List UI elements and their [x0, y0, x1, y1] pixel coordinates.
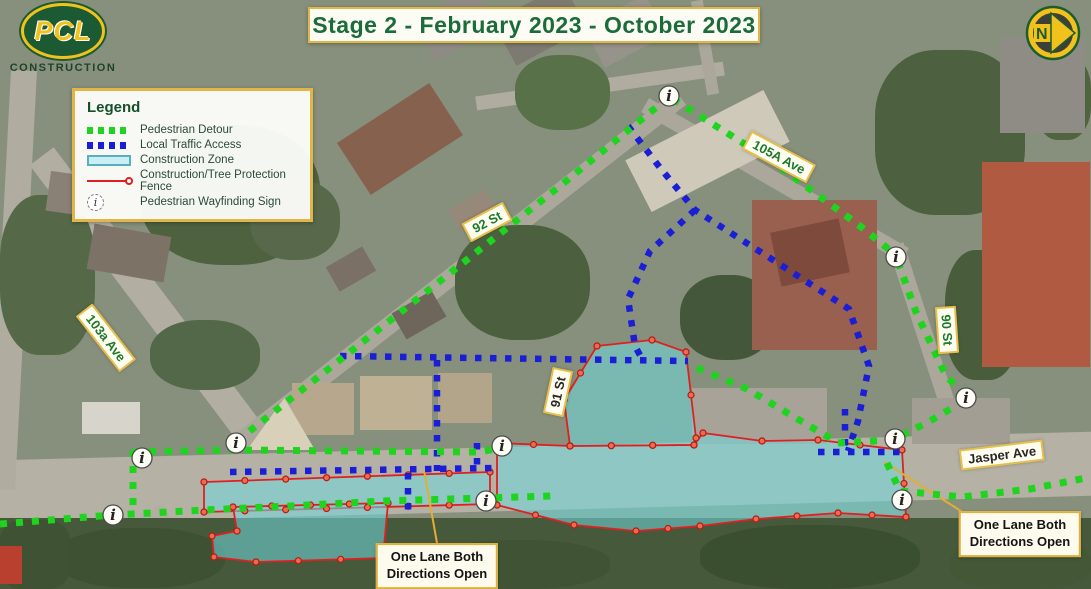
- fence-dot: [753, 516, 759, 522]
- wayfinding-sign-i-glyph: i: [899, 491, 905, 509]
- construction-staging-map: iiiiiiiiii PCL CONSTRUCTION Stage 2 - Fe…: [0, 0, 1091, 589]
- legend-item-construction-fence: Construction/Tree Protection Fence: [87, 169, 300, 193]
- pedestrian-detour-swatch-icon: [87, 124, 131, 136]
- fence-dot: [567, 443, 573, 449]
- fence-dot: [649, 337, 655, 343]
- fence-dot: [295, 558, 301, 564]
- street-label-90-st: 90 St: [935, 306, 959, 354]
- wayfinding-sign-i-glyph: i: [139, 449, 145, 467]
- local-traffic-access-path: [230, 468, 497, 472]
- fence-dot: [242, 478, 248, 484]
- fence-dot: [364, 473, 370, 479]
- fence-dot: [683, 349, 689, 355]
- pcl-logo-oval: PCL: [21, 3, 105, 59]
- fence-dot: [901, 481, 907, 487]
- fence-dot: [230, 504, 236, 510]
- wayfinding-sign-i-glyph: i: [233, 434, 239, 452]
- fence-dot: [700, 430, 706, 436]
- fence-dot: [688, 392, 694, 398]
- construction-zone-area: [564, 340, 696, 446]
- lane-status-callout: One Lane BothDirections Open: [959, 511, 1081, 557]
- north-compass-icon: N: [1024, 4, 1082, 62]
- stage-title-text: Stage 2 - February 2023 - October 2023: [312, 12, 755, 39]
- fence-dot: [608, 443, 614, 449]
- pedestrian-detour-path: [133, 448, 499, 452]
- fence-dot: [211, 554, 217, 560]
- pedestrian-detour-path: [697, 368, 835, 441]
- fence-dot: [759, 438, 765, 444]
- fence-dot: [697, 523, 703, 529]
- fence-dot: [234, 528, 240, 534]
- fence-dot: [446, 502, 452, 508]
- wayfinding-sign-swatch-icon: i: [87, 196, 131, 208]
- fence-dot: [201, 509, 207, 515]
- fence-dot: [571, 522, 577, 528]
- callout-line: Directions Open: [970, 534, 1070, 551]
- fence-dot: [253, 559, 259, 565]
- pedestrian-detour-path: [673, 99, 892, 252]
- legend-title: Legend: [87, 99, 300, 116]
- fence-dot: [869, 512, 875, 518]
- fence-dot: [578, 370, 584, 376]
- local-traffic-access-path: [628, 210, 695, 357]
- legend-label: Local Traffic Access: [140, 139, 241, 151]
- wayfinding-sign-i-glyph: i: [666, 87, 672, 105]
- wayfinding-sign-i-glyph: i: [499, 437, 505, 455]
- fence-dot: [815, 437, 821, 443]
- callout-line: One Lane Both: [387, 549, 487, 566]
- pedestrian-detour-path: [887, 463, 1091, 497]
- fence-dot: [693, 435, 699, 441]
- fence-dot: [533, 512, 539, 518]
- lane-status-callout: One Lane BothDirections Open: [376, 543, 498, 589]
- wayfinding-sign-i-glyph: i: [893, 248, 899, 266]
- fence-dot: [594, 343, 600, 349]
- pcl-logo-subtitle: CONSTRUCTION: [8, 62, 118, 74]
- local-traffic-swatch-icon: [87, 139, 131, 151]
- wayfinding-sign-i-glyph: i: [483, 492, 489, 510]
- callout-line: One Lane Both: [970, 517, 1070, 534]
- fence-dot: [650, 442, 656, 448]
- legend-panel: Legend Pedestrian Detour Local Traffic A…: [72, 88, 313, 222]
- fence-dot: [531, 442, 537, 448]
- legend-item-wayfinding-sign: i Pedestrian Wayfinding Sign: [87, 196, 300, 208]
- fence-dot: [794, 513, 800, 519]
- fence-dot: [364, 504, 370, 510]
- pcl-logo-text: PCL: [35, 16, 92, 47]
- wayfinding-sign-i-glyph: i: [110, 506, 116, 524]
- legend-label: Construction Zone: [140, 154, 234, 166]
- construction-zone-area: [497, 433, 906, 531]
- legend-item-construction-zone: Construction Zone: [87, 154, 300, 166]
- fence-dot: [665, 526, 671, 532]
- stage-title-banner: Stage 2 - February 2023 - October 2023: [308, 7, 760, 43]
- pcl-logo: PCL CONSTRUCTION: [8, 3, 118, 74]
- fence-dot: [338, 556, 344, 562]
- fence-dot: [691, 442, 697, 448]
- fence-dot: [446, 470, 452, 476]
- fence-dot: [633, 528, 639, 534]
- fence-dot: [209, 533, 215, 539]
- wayfinding-sign-i-glyph: i: [963, 389, 969, 407]
- construction-zone-swatch-icon: [87, 154, 131, 166]
- legend-item-local-traffic-access: Local Traffic Access: [87, 139, 300, 151]
- fence-dot: [201, 479, 207, 485]
- compass-n-label: N: [1036, 26, 1048, 43]
- fence-dot: [835, 510, 841, 516]
- fence-dot: [283, 476, 289, 482]
- pedestrian-detour-path: [899, 401, 964, 437]
- legend-item-pedestrian-detour: Pedestrian Detour: [87, 124, 300, 136]
- legend-label: Pedestrian Wayfinding Sign: [140, 196, 281, 208]
- fence-dot: [903, 514, 909, 520]
- north-compass: N: [1024, 4, 1082, 67]
- fence-dot: [324, 475, 330, 481]
- fence-swatch-icon: [87, 175, 131, 187]
- legend-label: Pedestrian Detour: [140, 124, 233, 136]
- wayfinding-sign-i-glyph: i: [892, 430, 898, 448]
- callout-line: Directions Open: [387, 566, 487, 583]
- legend-label: Construction/Tree Protection Fence: [140, 169, 300, 193]
